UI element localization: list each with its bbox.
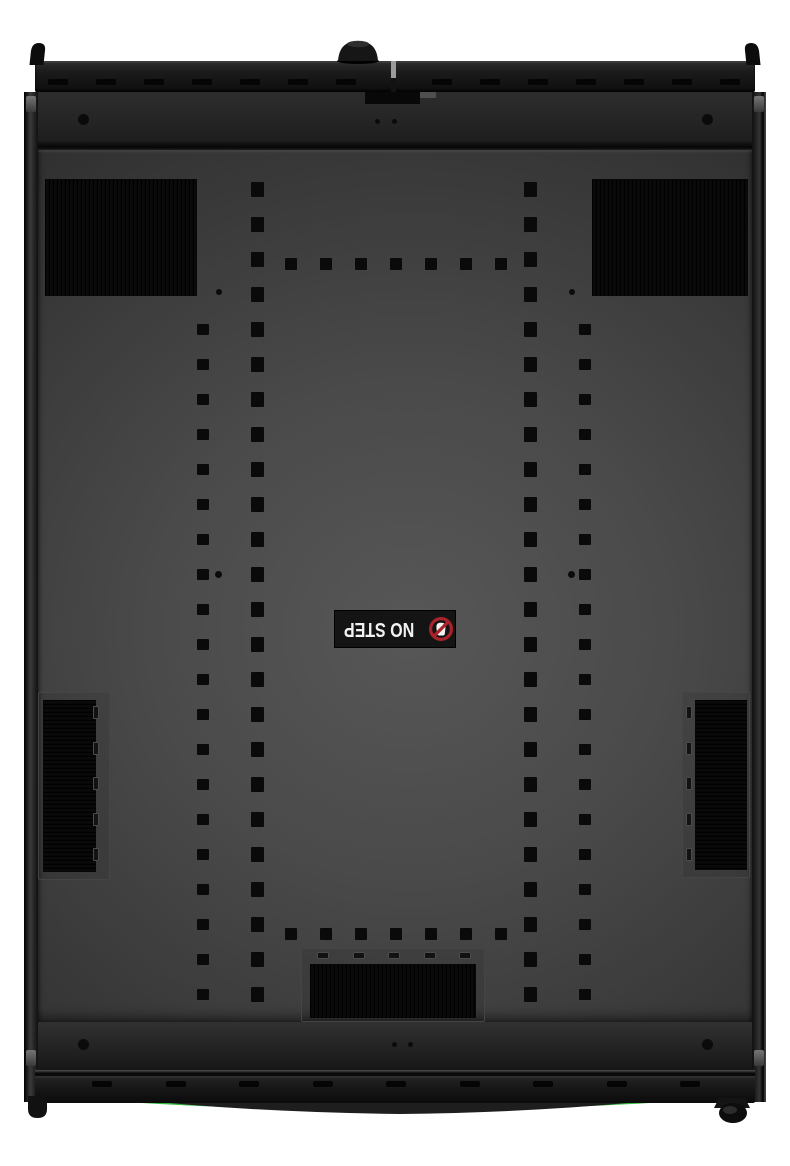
roof-hole-column-outer-right [579, 814, 591, 825]
roof-hole-column-inner-right [524, 567, 537, 582]
roof-hole-column-outer-right [579, 779, 591, 790]
roof-hole-column-inner-left [251, 252, 264, 267]
roof-hole-column-inner-left [251, 392, 264, 407]
roof-hole-column-inner-left [251, 602, 264, 617]
upper-flange-dot [392, 119, 397, 124]
roof-hole-column-outer-left [197, 534, 209, 545]
roof-hole-column-outer-left [197, 744, 209, 755]
roof-hole-column-outer-right [579, 744, 591, 755]
roof-hole-column-inner-right [524, 882, 537, 897]
roof-hole-row-top [390, 258, 402, 270]
bottom-grommet-frame-slot [388, 952, 400, 959]
roof-hole-column-outer-left [197, 569, 209, 580]
roof-hole-column-outer-right [579, 604, 591, 615]
roof-hole-column-outer-left [197, 884, 209, 895]
top-bar-slot [240, 79, 260, 85]
roof-hole-column-inner-left [251, 322, 264, 337]
roof-hole-column-inner-left [251, 217, 264, 232]
roof-hole-column-outer-left [197, 814, 209, 825]
top-bar-slot [144, 79, 164, 85]
top-bar-slot [672, 79, 692, 85]
roof-hole-column-inner-right [524, 252, 537, 267]
roof-hole-column-outer-right [579, 639, 591, 650]
roof-hole-column-outer-right [579, 534, 591, 545]
bottom-grommet-frame-slot [459, 952, 471, 959]
roof-hole-row-bottom [390, 928, 402, 940]
roof-pilot-hole [569, 289, 575, 295]
roof-hole-column-outer-left [197, 429, 209, 440]
roof-hole-column-inner-right [524, 987, 537, 1002]
roof-hole-column-inner-right [524, 462, 537, 477]
top-bar-slot [576, 79, 596, 85]
roof-hole-row-top [495, 258, 507, 270]
top-bar-slot [432, 79, 452, 85]
roof-hole-column-outer-right [579, 429, 591, 440]
roof-hole-column-inner-right [524, 217, 537, 232]
roof-hole-row-bottom [285, 928, 297, 940]
side-grommet-frame-slot-right [686, 706, 692, 719]
side-grommet-frame-slot-left [93, 848, 99, 861]
roof-hole-column-inner-right [524, 777, 537, 792]
side-grommet-frame-slot-right [686, 848, 692, 861]
bottom-bar-slot [239, 1081, 259, 1087]
roof-hole-column-inner-right [524, 812, 537, 827]
roof-hole-column-inner-left [251, 707, 264, 722]
bottom-grommet-frame-slot [317, 952, 329, 959]
roof-hole-column-outer-right [579, 954, 591, 965]
roof-hole-column-outer-left [197, 359, 209, 370]
roof-hole-column-inner-right [524, 532, 537, 547]
bottom-grommet-frame-slot [424, 952, 436, 959]
roof-hole-column-inner-left [251, 987, 264, 1002]
no-step-text: NO STEP [344, 618, 414, 641]
roof-hole-column-outer-right [579, 394, 591, 405]
roof-hole-column-outer-right [579, 884, 591, 895]
top-bar-slot [480, 79, 500, 85]
roof-hole-column-outer-left [197, 849, 209, 860]
roof-hole-column-outer-right [579, 989, 591, 1000]
roof-hole-column-inner-left [251, 812, 264, 827]
roof-hole-column-inner-right [524, 917, 537, 932]
roof-hole-column-inner-right [524, 742, 537, 757]
side-grommet-frame-slot-left [93, 706, 99, 719]
bottom-bar-slot [386, 1081, 406, 1087]
roof-hole-row-top [355, 258, 367, 270]
roof-hole-row-bottom [355, 928, 367, 940]
side-grommet-frame-slot-right [686, 813, 692, 826]
no-step-icon [428, 616, 454, 642]
upper-flange-hole [78, 114, 89, 125]
roof-hole-column-outer-left [197, 989, 209, 1000]
roof-hole-column-inner-left [251, 637, 264, 652]
bottom-bar-slot [166, 1081, 186, 1087]
bottom-bar-slot [607, 1081, 627, 1087]
roof-hole-column-inner-left [251, 532, 264, 547]
roof-hole-column-inner-left [251, 952, 264, 967]
side-grommet-frame-slot-right [686, 777, 692, 790]
roof-hole-row-bottom [495, 928, 507, 940]
roof-pilot-hole [216, 289, 222, 295]
roof-hole-column-outer-right [579, 464, 591, 475]
roof-pilot-hole [568, 571, 575, 578]
roof-hole-column-inner-left [251, 882, 264, 897]
roof-hole-column-inner-left [251, 287, 264, 302]
side-grommet-frame-slot-left [93, 813, 99, 826]
roof-hole-column-outer-right [579, 499, 591, 510]
roof-hole-column-inner-right [524, 427, 537, 442]
roof-hole-column-inner-right [524, 672, 537, 687]
top-bar-slot [192, 79, 212, 85]
roof-hole-column-inner-right [524, 847, 537, 862]
top-bar-slot [528, 79, 548, 85]
roof-hole-column-inner-left [251, 847, 264, 862]
roof-hole-column-outer-left [197, 709, 209, 720]
top-bar-slot [48, 79, 68, 85]
roof-hole-column-outer-right [579, 709, 591, 720]
roof-hole-column-inner-right [524, 952, 537, 967]
roof-hole-column-inner-left [251, 427, 264, 442]
roof-hole-column-outer-right [579, 849, 591, 860]
no-step-label: NO STEP [334, 610, 456, 648]
roof-hole-column-inner-right [524, 287, 537, 302]
top-bar-slot [288, 79, 308, 85]
roof-hole-column-inner-left [251, 462, 264, 477]
roof-hole-column-outer-left [197, 954, 209, 965]
lower-flange-hole [78, 1039, 89, 1050]
roof-hole-column-inner-left [251, 567, 264, 582]
roof-hole-column-outer-left [197, 639, 209, 650]
top-bar-slot [336, 79, 356, 85]
roof-hole-column-outer-left [197, 604, 209, 615]
roof-hole-column-outer-left [197, 919, 209, 930]
roof-hole-column-inner-left [251, 357, 264, 372]
lower-flange-hole [702, 1039, 713, 1050]
roof-hole-column-inner-right [524, 497, 537, 512]
roof-hole-column-outer-left [197, 499, 209, 510]
roof-hole-column-inner-left [251, 777, 264, 792]
roof-hole-row-top [425, 258, 437, 270]
roof-hole-row-bottom [320, 928, 332, 940]
roof-hole-row-top [320, 258, 332, 270]
roof-hole-column-inner-right [524, 357, 537, 372]
upper-flange-hole [702, 114, 713, 125]
roof-hole-column-outer-left [197, 394, 209, 405]
roof-hole-column-inner-right [524, 182, 537, 197]
lower-flange-dot [408, 1042, 413, 1047]
top-bar-slot [624, 79, 644, 85]
bottom-bar-slot [533, 1081, 553, 1087]
bottom-grommet-frame-slot [353, 952, 365, 959]
rack-roof-top-view-photo: NO STEP [0, 0, 790, 1166]
roof-hole-column-outer-right [579, 324, 591, 335]
roof-hole-column-inner-left [251, 742, 264, 757]
bottom-bar-slot [460, 1081, 480, 1087]
roof-hole-column-inner-left [251, 672, 264, 687]
roof-pilot-hole [215, 571, 222, 578]
bottom-bar-slot [680, 1081, 700, 1087]
roof-hole-column-outer-left [197, 779, 209, 790]
roof-hole-column-outer-left [197, 464, 209, 475]
bottom-bar-slot [313, 1081, 333, 1087]
roof-hole-column-outer-right [579, 359, 591, 370]
roof-hole-column-outer-left [197, 674, 209, 685]
perforation-layer [0, 0, 790, 1166]
roof-hole-column-inner-left [251, 497, 264, 512]
roof-hole-column-outer-right [579, 674, 591, 685]
roof-hole-column-inner-right [524, 602, 537, 617]
side-grommet-frame-slot-right [686, 742, 692, 755]
bottom-bar-slot [92, 1081, 112, 1087]
roof-hole-column-outer-right [579, 569, 591, 580]
side-grommet-frame-slot-left [93, 742, 99, 755]
roof-hole-column-inner-right [524, 707, 537, 722]
roof-hole-column-outer-left [197, 324, 209, 335]
top-bar-slot [96, 79, 116, 85]
roof-hole-row-bottom [425, 928, 437, 940]
roof-hole-row-top [460, 258, 472, 270]
roof-hole-column-inner-right [524, 637, 537, 652]
upper-flange-dot [375, 119, 380, 124]
roof-hole-column-inner-right [524, 392, 537, 407]
roof-hole-column-inner-left [251, 182, 264, 197]
roof-hole-column-inner-left [251, 917, 264, 932]
roof-hole-column-outer-right [579, 919, 591, 930]
roof-hole-row-bottom [460, 928, 472, 940]
side-grommet-frame-slot-left [93, 777, 99, 790]
top-bar-slot [720, 79, 740, 85]
roof-hole-column-inner-right [524, 322, 537, 337]
roof-hole-row-top [285, 258, 297, 270]
lower-flange-dot [392, 1042, 397, 1047]
